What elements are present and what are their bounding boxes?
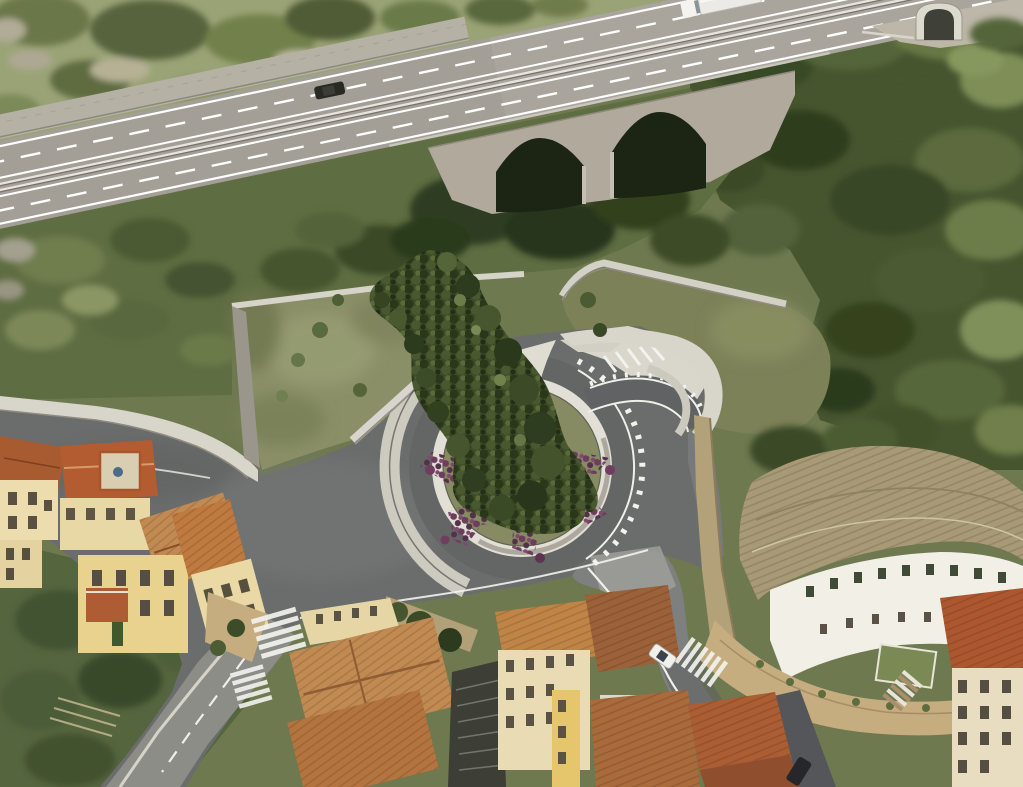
terrace-roof	[86, 588, 128, 622]
aerial-photomontage	[0, 0, 1023, 787]
facade	[60, 498, 150, 550]
facade	[0, 540, 42, 588]
scene-canvas	[0, 0, 1023, 787]
green-door	[112, 622, 123, 646]
portal-opening	[924, 9, 954, 40]
roof-terrace	[100, 452, 140, 490]
